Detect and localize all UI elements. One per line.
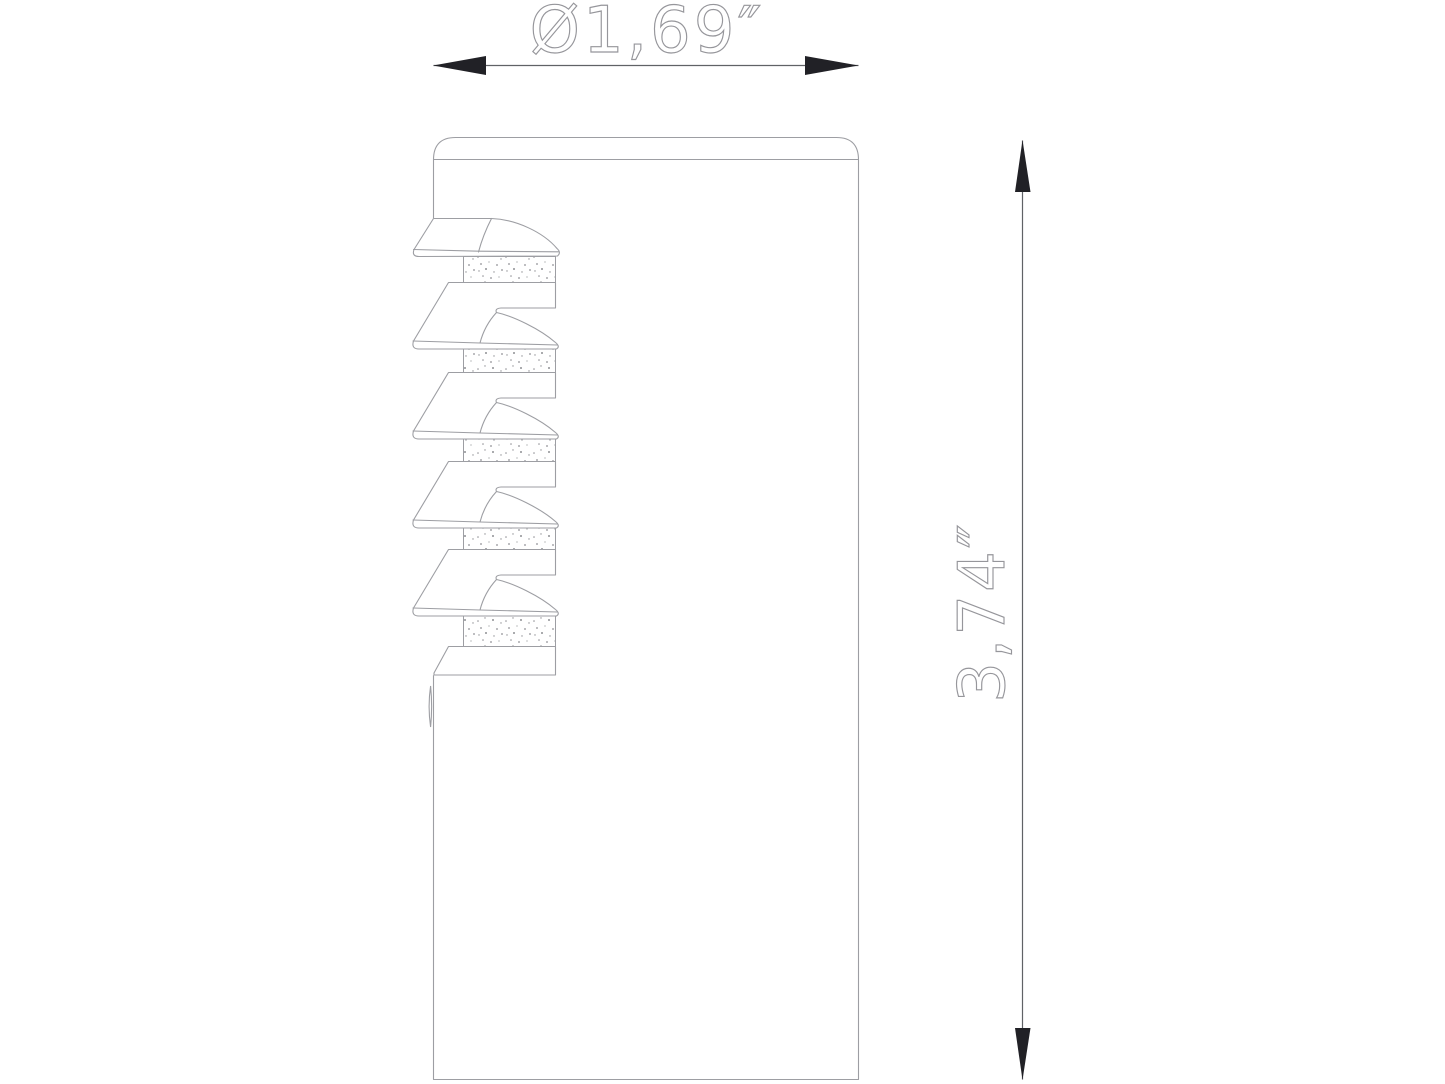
arrowhead-bottom-icon <box>1015 1028 1031 1080</box>
arrowhead-right-icon <box>805 56 859 75</box>
arrowhead-top-icon <box>1015 140 1031 192</box>
knurl-band-1 <box>464 257 556 283</box>
height-dimension: 3,74″ <box>946 140 1031 1080</box>
diameter-dimension: Ø1,69″ <box>433 0 859 75</box>
height-dimension-label: 3,74″ <box>946 521 1020 702</box>
arrowhead-left-icon <box>433 56 486 75</box>
bottom-collar <box>434 647 556 676</box>
diameter-dimension-label: Ø1,69″ <box>530 0 765 68</box>
knurl-band-3 <box>464 439 556 462</box>
technical-drawing-page: Ø1,69″ 3,74″ <box>0 0 1445 1084</box>
knurl-band-2 <box>464 349 556 373</box>
knurl-band-4 <box>464 528 556 550</box>
technical-drawing-canvas: Ø1,69″ 3,74″ <box>0 0 1445 1084</box>
knurl-band-5 <box>464 616 556 647</box>
parting-line <box>429 686 431 727</box>
